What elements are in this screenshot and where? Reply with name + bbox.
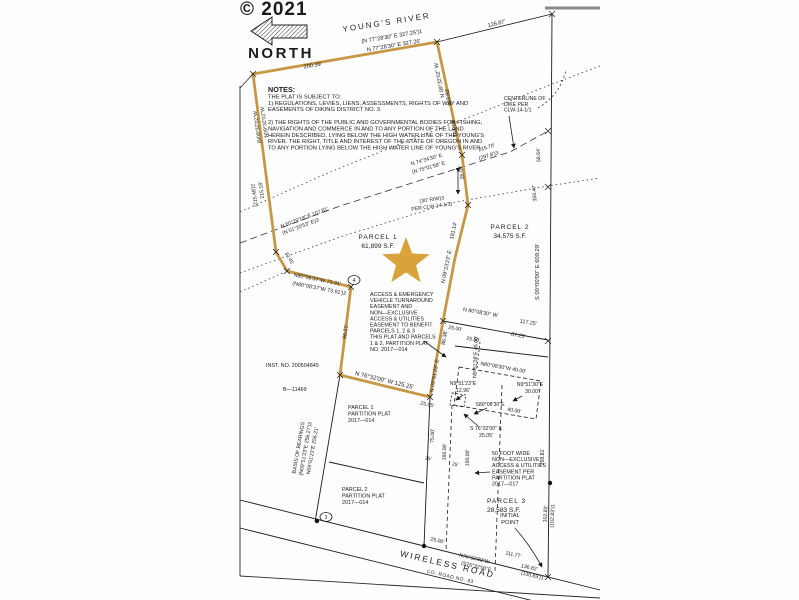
parcel2-area: 34,575 S.F.	[493, 233, 527, 240]
fifty-foot-easement-note-line: 50 FOOT WIDE	[492, 451, 530, 457]
dist-75-00: 75.00'	[430, 429, 436, 443]
bearing-80-08-30: N 80°08'30" W	[462, 307, 498, 319]
initial-point-a: INITIAL	[500, 513, 520, 519]
dist-102-83: 102.83'	[543, 505, 550, 522]
turnaround-notch	[450, 393, 466, 407]
notes-block-line: TO ANY PORTION LYING BELOW THE HIGH WATE…	[268, 146, 482, 152]
s76-leader	[464, 414, 478, 426]
bearing-25-05-b: 25.05'	[479, 433, 493, 439]
easement-south-line	[455, 346, 548, 357]
ref-point-3-number: 3	[325, 515, 328, 521]
dist-160-00-b: 160.00'	[465, 449, 472, 466]
parcel2-partition-note-line: 2017—014	[342, 500, 368, 506]
dist-25-b: 25'	[451, 461, 459, 468]
dist-67-25: 67.25'	[510, 332, 525, 340]
fifty-foot-easement-note-line: EASEMENT PER	[492, 469, 534, 475]
access-emergency-easement-note-line: EASEMENT TO BENEFIT	[370, 323, 433, 329]
parcel1-partition-note-line: PARCEL 1	[348, 405, 373, 411]
parcel2-partition-note-line: PARCEL 2	[342, 487, 367, 493]
ref-point-4-number: 4	[353, 278, 356, 284]
thirty-foot-leader	[513, 396, 522, 401]
fifty-foot-easement-note-line: NON—EXCLUSIVE	[492, 457, 540, 463]
reference-point-bubbles: 43	[320, 276, 360, 522]
bearing-30-00-b: 30.00'	[525, 389, 539, 395]
bearing-12-96-b: 12.96'	[456, 388, 470, 394]
notes-block-line: 2) THE RIGHTS OF THE PUBLIC AND GOVERNME…	[268, 120, 483, 126]
north-label: NORTH	[248, 45, 314, 62]
dist-102-83-record: (102.83')1	[549, 504, 556, 528]
dist-26-04: 26.04'	[458, 164, 467, 179]
monument-dot	[315, 519, 319, 523]
fifty-foot-easement-note-line: 2017—017	[492, 482, 518, 488]
access-emergency-easement-note-line: 1 & 2, PARTITION PLAT	[370, 341, 429, 347]
north-line-extension	[437, 14, 552, 42]
notes-block-line: RIVER. THE RIGHT, TITLE AND INTEREST OF …	[268, 139, 482, 145]
twelve-96-leader	[456, 395, 463, 400]
dist-160-00-a: 160.00'	[442, 443, 449, 460]
notes-block-line: NOTES:	[268, 85, 295, 94]
dist-32-45: 32.45'	[283, 251, 295, 266]
partition-lot-line	[329, 462, 424, 483]
bearing-40-00-s: S80°08'30"E	[475, 402, 505, 408]
access-emergency-easement-note-line: NON—EXCLUSIVE	[370, 310, 418, 316]
dist-117-25: 117.25'	[519, 319, 537, 328]
inst-no: INST. NO. 200504845	[266, 363, 319, 369]
road-south-edge	[240, 528, 562, 600]
dist-25-05: 25.05'	[420, 401, 435, 410]
survey-plat-drawing: © 2021NORTHYOUNG'S RIVER(N 77°28'30" E 3…	[0, 0, 799, 600]
bearing-40-00-n: N80°08'30"W 40.00'	[480, 361, 527, 375]
access-emergency-easement-note-line: PARCELS 1, 2 & 3	[370, 329, 415, 335]
dist-215-18: 215.18'	[258, 181, 266, 199]
north-arrow-icon	[251, 17, 307, 45]
dist-181-14: 181.14'	[449, 222, 459, 240]
dist-86-38: 86.38'	[441, 330, 449, 345]
easement-west-line	[424, 397, 430, 546]
notes-block-line: THE PLAT IS SUBJECT TO:	[268, 94, 342, 100]
notes-block-line: 1) REGULATIONS, LEVIES, LIENS, ASSESSMEN…	[268, 101, 468, 107]
meander-tie-line	[240, 272, 285, 292]
monument-dot	[422, 544, 426, 548]
access-emergency-easement-note-line: ACCESS & EMERGENCY	[370, 292, 434, 298]
watermark: © 2021	[240, 0, 308, 20]
dist-350-47: 350.47'	[532, 184, 539, 201]
dist-25-00-road: 25.00'	[430, 537, 445, 546]
access-emergency-easement-note-line: EASEMENT AND	[370, 304, 412, 310]
parcel2-partition-note-line: PARTITION PLAT	[342, 494, 386, 500]
dist-136-83-record: (136.83')1	[520, 570, 544, 581]
access-emergency-easement-note-line: ACCESS & UTILITIES	[370, 316, 424, 322]
access-emergency-easement-note-line: VEHICLE TURNAROUND	[370, 298, 433, 304]
initial-point-leader	[515, 528, 542, 567]
monument-dot	[548, 481, 552, 485]
plat-map-page: © 2021NORTHYOUNG'S RIVER(N 77°28'30" E 3…	[0, 0, 799, 600]
dist-58-64: 58.64'	[536, 148, 543, 162]
dist-200-39: 200.39'	[303, 62, 322, 71]
bearing-30-00-a: N9°51'30"E	[517, 382, 544, 388]
centerline-dike-note-line: CLW-14-1/1	[504, 108, 532, 114]
dist-96-21: 96.21'	[342, 324, 350, 339]
fifty-foot-easement-note-line: ACCESS & UTILITIES	[492, 463, 546, 469]
notes-block-line: NAVIGATION AND COMMERCE IN AND TO ANY PO…	[268, 126, 464, 132]
notes-block-line: EASEMENTS OF DIKING DISTRICT NO. 3.	[268, 107, 382, 113]
bearing-09-51-23-gold: N 09°51'23" E	[429, 358, 441, 393]
basis-of-bearings-line	[315, 375, 340, 522]
access-emergency-easement-note-line: NO. 2017—014	[370, 347, 407, 353]
notes-block-line: HEREIN DESCRIBED, LYING BELOW THE HIGH W…	[268, 133, 484, 139]
corner-x-mark	[545, 184, 551, 190]
dist-25-a: 25'	[424, 455, 432, 462]
bearing-s00: S 00°00'00" E 609.29'	[535, 244, 541, 300]
corner-x-mark	[545, 128, 551, 134]
bearing-25-05-a: S 76°32'00" E	[470, 426, 503, 432]
b-11469: B—11469	[283, 387, 307, 393]
dike-note-leader	[509, 116, 514, 148]
bearing-12-96-a: N9°51'23"E	[450, 381, 477, 387]
fifty-foot-easement-note-line: PARTITION PLAT	[492, 475, 536, 481]
parcel2-name: PARCEL 2	[490, 224, 529, 231]
parcel1-area: 61,899 S.F.	[361, 243, 395, 250]
parcel1-partition-note-line: PARTITION PLAT	[348, 412, 392, 418]
access-emergency-easement-note-line: THIS PLAT AND PARCELS	[370, 335, 436, 341]
parcel1-partition-note-line: 2017—014	[348, 418, 374, 424]
access-easement-east-dashed	[446, 405, 452, 551]
bearing-45-00: N9°51'28"E 45.00'	[472, 336, 479, 378]
parcel1-name: PARCEL 1	[358, 234, 397, 241]
initial-point-b: POINT	[501, 520, 519, 526]
dist-40-00-s: 40.00'	[507, 407, 522, 415]
fifty-foot-note-leader	[475, 472, 490, 473]
dist-25-00-a: 25.00'	[448, 325, 463, 333]
dist-111-77: 111.77'	[505, 550, 522, 559]
parcel3-name: PARCEL 3	[487, 498, 526, 505]
